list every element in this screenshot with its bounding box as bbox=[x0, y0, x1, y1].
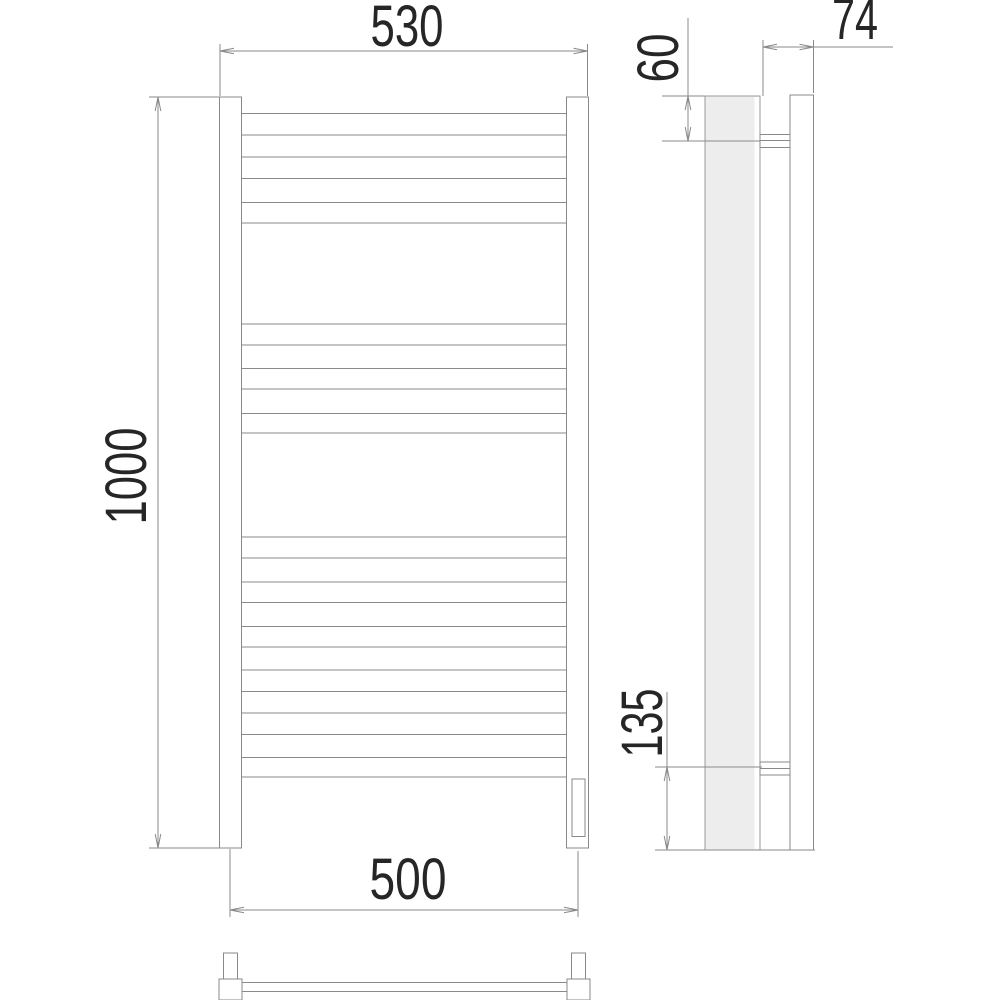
bottom-rail-lines bbox=[242, 983, 567, 992]
right-post bbox=[567, 97, 589, 848]
rung-4 bbox=[242, 324, 567, 345]
rung-1 bbox=[242, 114, 567, 136]
dim-label-overall-width: 530 bbox=[371, 0, 444, 59]
dim-label-mount-width: 500 bbox=[370, 847, 447, 912]
technical-drawing-canvas: 530 1000 500 60 74 135 bbox=[0, 0, 1000, 1000]
side-view bbox=[705, 95, 814, 850]
bottom-view bbox=[219, 953, 590, 1000]
right-bracket-stub bbox=[572, 953, 586, 979]
rung-10 bbox=[242, 670, 567, 692]
rung-7 bbox=[242, 537, 567, 558]
left-post bbox=[220, 97, 242, 848]
rung-12 bbox=[242, 758, 567, 778]
tube-side-profile bbox=[705, 96, 760, 850]
dim-mount-width: 500 bbox=[230, 847, 578, 917]
left-bracket-stub bbox=[224, 953, 238, 979]
rung-9 bbox=[242, 627, 567, 648]
dim-depth: 74 bbox=[763, 0, 893, 96]
dim-label-overall-height: 1000 bbox=[94, 428, 159, 525]
dim-label-depth: 74 bbox=[832, 0, 878, 52]
rung-3 bbox=[242, 203, 567, 224]
tube-highlight bbox=[755, 97, 760, 849]
rung-11 bbox=[242, 713, 567, 735]
rung-2 bbox=[242, 157, 567, 179]
dim-label-bottom-bracket-offset: 135 bbox=[610, 689, 675, 758]
rung-8 bbox=[242, 582, 567, 603]
towel-rail-drawing: 530 1000 500 60 74 135 bbox=[0, 0, 1000, 1000]
left-post-bottom bbox=[219, 979, 242, 1000]
wall-plate bbox=[790, 95, 814, 850]
right-post-bottom bbox=[567, 979, 590, 1000]
rungs bbox=[242, 114, 567, 778]
front-view bbox=[220, 97, 589, 848]
rung-6 bbox=[242, 414, 567, 434]
dim-overall-height: 1000 bbox=[94, 97, 240, 848]
dim-label-top-bracket-offset: 60 bbox=[626, 34, 691, 83]
rung-5 bbox=[242, 369, 567, 390]
dim-overall-width: 530 bbox=[220, 0, 588, 96]
